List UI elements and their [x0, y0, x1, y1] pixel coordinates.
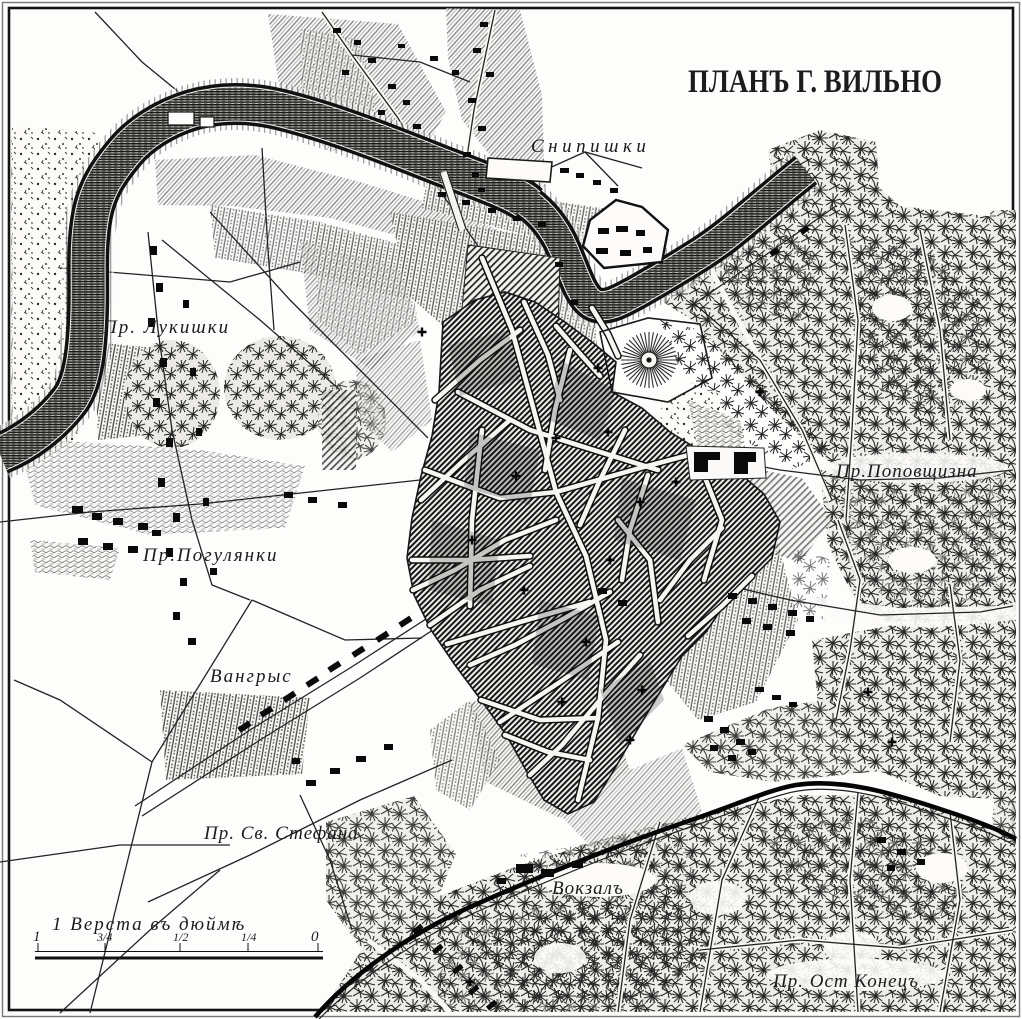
- svg-text:1 Верста въ дюймѣ: 1 Верста въ дюймѣ: [52, 914, 246, 935]
- svg-text:ПЛАНЪ Г. ВИЛЬНО: ПЛАНЪ Г. ВИЛЬНО: [688, 64, 942, 100]
- svg-text:Вангрыс: Вангрыс: [210, 666, 293, 687]
- svg-text:0: 0: [311, 929, 319, 945]
- svg-text:Пр.Погулянки: Пр.Погулянки: [142, 545, 278, 566]
- svg-text:Снипишки: Снипишки: [531, 136, 650, 157]
- svg-text:Пр.Поповщизна: Пр.Поповщизна: [835, 461, 978, 482]
- svg-text:Пр. Св. Стефана: Пр. Св. Стефана: [203, 823, 359, 844]
- svg-text:3/4: 3/4: [96, 930, 112, 944]
- svg-text:Вокзалъ: Вокзалъ: [552, 878, 624, 899]
- svg-text:1/2: 1/2: [173, 930, 188, 944]
- svg-text:Пр. Ост Конецъ: Пр. Ост Конецъ: [772, 971, 919, 992]
- svg-text:1/4: 1/4: [241, 930, 256, 944]
- svg-text:1: 1: [33, 929, 41, 945]
- svg-text:Пр. Лукишки: Пр. Лукишки: [102, 317, 230, 338]
